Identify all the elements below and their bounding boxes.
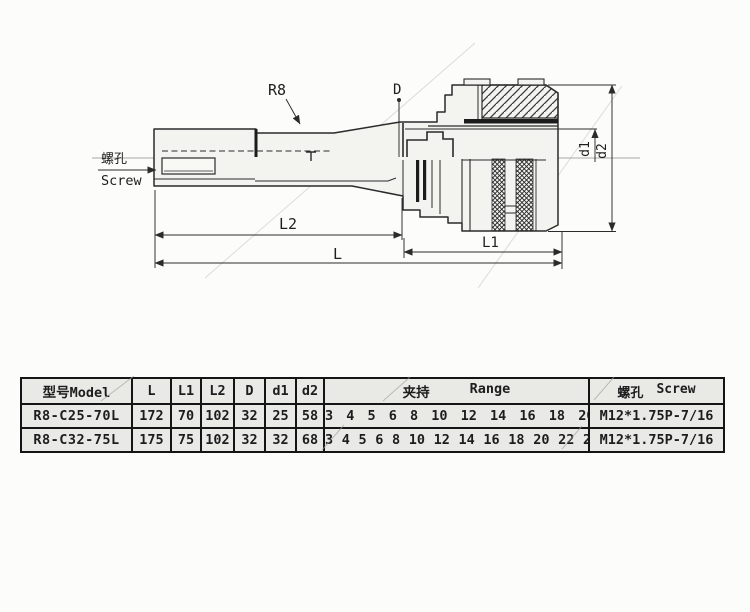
label-screw-cn: 螺孔 [101,152,127,167]
label-screw-en: Screw [101,173,143,189]
knurl-band [492,159,505,231]
col-header-l1: L1 [171,378,201,404]
cell-l2: 102 [201,428,234,452]
col-header-range: 夹持 Range [324,378,589,404]
table-row: R8-C32-75L 175 75 102 32 32 68 3 4 5 6 8… [21,428,724,452]
label-d2: d2 [595,143,610,159]
label-r8: R8 [268,81,286,99]
cell-d: 32 [234,404,265,428]
cell-d2: 68 [296,428,324,452]
col-header-d2: d2 [296,378,324,404]
cell-d2: 58 [296,404,324,428]
cell-l2: 102 [201,404,234,428]
range-header-cn: 夹持 [403,381,430,401]
cell-l: 172 [132,404,171,428]
table-header-row: 型号Model L L1 L2 D d1 d2 夹持 Range 螺孔 Scre… [21,378,724,404]
cell-screw: M12*1.75P-7/16 [589,428,724,452]
cell-l: 175 [132,428,171,452]
cell-d1: 25 [265,404,296,428]
cell-d1: 32 [265,428,296,452]
technical-drawing: R8 D L2 L1 L d1 d2 螺孔 Screw [0,0,750,612]
cell-l1: 75 [171,428,201,452]
screw-header-cn: 螺孔 [617,382,643,401]
knurl-band [516,159,533,231]
cell-l1: 70 [171,404,201,428]
spec-table: 型号Model L L1 L2 D d1 d2 夹持 Range 螺孔 Scre… [20,377,725,453]
label-d: D [393,82,401,98]
cell-model: R8-C25-70L [21,404,132,428]
r8-leader [286,99,300,124]
label-l2: L2 [279,215,297,233]
label-l: L [333,245,342,263]
cell-model: R8-C32-75L [21,428,132,452]
cell-range: 3 4 5 6 8 10 12 14 16 18 20 22 24 25 [324,428,589,452]
flange-top-tab [464,79,490,85]
label-d1: d1 [578,141,593,157]
flange-top-tab [518,79,544,85]
datasheet-page: R8 D L2 L1 L d1 d2 螺孔 Screw 型号Model L L1… [0,0,750,612]
col-header-d1: d1 [265,378,296,404]
cell-screw: M12*1.75P-7/16 [589,404,724,428]
col-header-screw: 螺孔 Screw [589,378,724,404]
table-row: R8-C25-70L 172 70 102 32 25 58 3 4 5 6 8… [21,404,724,428]
cell-range: 3 4 5 6 8 10 12 14 16 18 20 [324,404,589,428]
col-header-l: L [132,378,171,404]
range-header-en: Range [470,381,511,401]
col-header-l2: L2 [201,378,234,404]
cell-d: 32 [234,428,265,452]
col-header-d: D [234,378,265,404]
label-l1: L1 [482,235,499,251]
col-header-model: 型号Model [21,378,132,404]
screw-header-en: Screw [656,382,695,401]
